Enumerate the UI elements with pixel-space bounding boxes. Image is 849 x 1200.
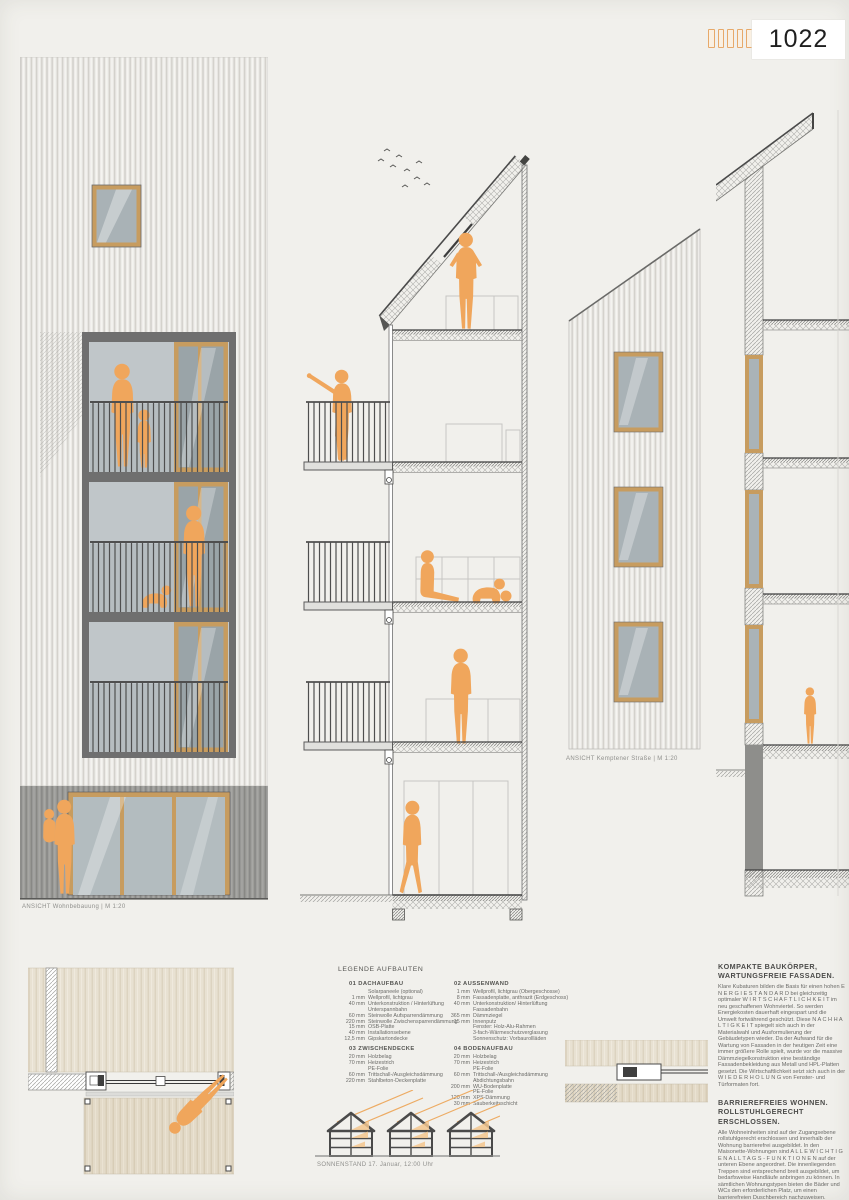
article-title: KOMPAKTE BAUKÖRPER, WARTUNGSFREIE FASSAD… bbox=[718, 962, 846, 980]
elevation-wohnbebauung-drawing bbox=[20, 57, 268, 900]
wall-hatch bbox=[46, 968, 57, 1072]
person-walking-silhouette bbox=[400, 801, 422, 894]
facade-section-detail bbox=[716, 110, 849, 910]
birds-icon bbox=[378, 149, 430, 187]
page-number-card: 1022 bbox=[752, 20, 845, 59]
section-window bbox=[745, 490, 763, 588]
sun-study-caption: SONNENSTAND 17. Januar, 12:00 Uhr bbox=[317, 1162, 433, 1168]
facade-window bbox=[614, 487, 663, 567]
bay-floor-2 bbox=[82, 472, 236, 612]
facade-window bbox=[614, 622, 663, 702]
exterior-wall bbox=[522, 165, 527, 900]
article-body: Klare Kubaturen bilden die Basis für ein… bbox=[718, 984, 846, 1088]
house-section-icon bbox=[328, 1113, 374, 1156]
legend-section-title: 04 BODENAUFBAU bbox=[454, 1046, 579, 1052]
tick-outline-icon bbox=[718, 29, 725, 48]
legend-rows: 1 mmWellprofil, lichtgrau (Obergeschosse… bbox=[444, 990, 579, 1043]
article-fassaden: KOMPAKTE BAUKÖRPER, WARTUNGSFREIE FASSAD… bbox=[718, 962, 846, 1088]
page-number: 1022 bbox=[769, 25, 829, 54]
legend-row: 12,5 mmGipskartondecke bbox=[339, 1037, 449, 1043]
balcony-railing bbox=[90, 682, 228, 752]
legend-row: Sonnenschutz: Vorbaurollläden bbox=[444, 1037, 579, 1043]
floor-slabs bbox=[763, 320, 849, 604]
article-body: Alle Wohneinheiten sind auf der Zugangse… bbox=[718, 1130, 846, 1200]
facade-section-drawing bbox=[716, 110, 849, 905]
ground-floor-slab bbox=[716, 745, 849, 777]
roof-section bbox=[379, 156, 528, 331]
balcony-railing bbox=[90, 402, 228, 472]
balcony-railing bbox=[90, 542, 228, 612]
ball-icon bbox=[501, 591, 512, 602]
window-plan-detail-drawing bbox=[28, 966, 234, 1176]
article-barrierefrei: BARRIEREFREIES WOHNEN. ROLLSTUHLGERECHT … bbox=[718, 1098, 846, 1200]
terrace-floor bbox=[84, 1098, 234, 1174]
basement-slab bbox=[745, 870, 849, 888]
legend-section-title: 02 AUSSENWAND bbox=[454, 981, 579, 987]
house-section-icon bbox=[388, 1113, 434, 1156]
tick-outline-icon bbox=[708, 29, 715, 48]
window-plan-detail bbox=[28, 966, 234, 1181]
legend-section-aussenwand: 02 AUSSENWAND 1 mmWellprofil, lichtgrau … bbox=[444, 981, 579, 1043]
ground-line bbox=[20, 898, 268, 900]
sill-section-drawing bbox=[565, 1040, 708, 1110]
roof-section bbox=[716, 113, 813, 201]
interior-floor bbox=[28, 968, 234, 1072]
elevation-street bbox=[566, 228, 702, 757]
balcony-bay bbox=[82, 332, 236, 758]
house-sections bbox=[328, 1113, 494, 1156]
bay-floor-3 bbox=[82, 612, 236, 752]
building-section bbox=[296, 143, 534, 927]
legend-section-dachaufbau: 01 DACHAUFBAU Solarpaneele (optional)1 m… bbox=[339, 981, 449, 1043]
section-window bbox=[745, 355, 763, 453]
article-title: BARRIEREFREIES WOHNEN. ROLLSTUHLGERECHT … bbox=[718, 1098, 846, 1126]
person-silhouette bbox=[451, 649, 471, 744]
bay-floor-1 bbox=[82, 332, 236, 472]
legend-section-title: 01 DACHAUFBAU bbox=[349, 981, 449, 987]
legend-rows: 20 mmHolzbelag70 mmHeizestrichPE-Folie60… bbox=[339, 1055, 449, 1085]
legend-section-title: 03 ZWISCHENDECKE bbox=[349, 1046, 449, 1052]
facade-window bbox=[614, 352, 663, 432]
legend-section-zwischendecke: 03 ZWISCHENDECKE 20 mmHolzbelag70 mmHeiz… bbox=[339, 1046, 449, 1085]
tick-outline-icon bbox=[737, 29, 744, 48]
article-column: KOMPAKTE BAUKÖRPER, WARTUNGSFREIE FASSAD… bbox=[718, 962, 846, 1200]
sill-section-detail bbox=[565, 1040, 708, 1115]
person-silhouette bbox=[804, 687, 816, 743]
elevation-street-caption: ANSICHT Kemptener Straße | M 1:20 bbox=[566, 756, 678, 762]
balconies bbox=[304, 402, 393, 764]
ground-slab bbox=[300, 895, 522, 920]
legend-title: LEGENDE AUFBAUTEN bbox=[338, 966, 423, 973]
person-sitting-silhouette bbox=[420, 550, 459, 602]
legend-rows: Solarpaneele (optional)1 mmWellprofil, l… bbox=[339, 990, 449, 1043]
child-crawling-silhouette bbox=[473, 579, 505, 604]
small-window bbox=[92, 185, 141, 247]
section-window bbox=[745, 625, 763, 723]
sun-study-diagram bbox=[315, 1090, 500, 1173]
elevation-street-drawing bbox=[566, 228, 702, 752]
house-section-icon bbox=[448, 1113, 494, 1156]
ground-floor bbox=[20, 786, 268, 899]
elevation-wohnbebauung bbox=[20, 57, 268, 905]
legend-row: 220 mmStahlbeton-Deckenplatte bbox=[339, 1079, 449, 1085]
sun-study-drawing bbox=[315, 1090, 500, 1168]
building-section-drawing bbox=[296, 143, 534, 922]
poster-page: 1022 bbox=[0, 0, 849, 1200]
tick-outline-icon bbox=[727, 29, 734, 48]
elevation-wohnbebauung-caption: ANSICHT Wohnbebauung | M 1:20 bbox=[22, 904, 126, 910]
